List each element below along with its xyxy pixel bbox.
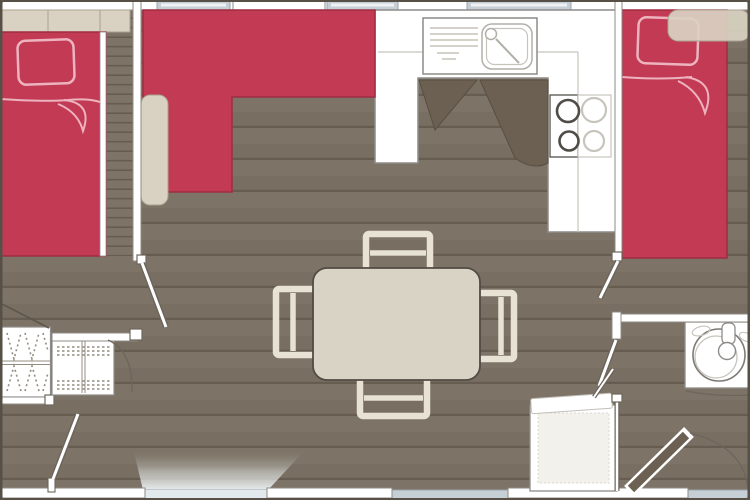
corner-shelf [668,10,750,41]
double-bed [0,32,106,256]
wall-kidsroom [52,333,137,341]
double-bed-edge [100,32,106,256]
floorplan [0,0,750,500]
wall-kitchen-right [615,0,622,259]
bottom-wall-1 [2,488,145,498]
bottom-wall-2 [267,488,392,498]
kids-wall-hinge [130,329,142,340]
top-window-4-glass [471,4,567,7]
shower-tray-inner [538,413,609,483]
burner-1 [557,100,579,122]
burner-2 [560,132,579,151]
dining-table [313,268,480,380]
floorplan-svg [0,0,750,500]
washbasin-knob [719,343,736,360]
wall-bathroom [618,314,750,322]
bunk-bed-2 [52,336,114,395]
washbasin-faucet [722,323,735,344]
wardrobe-strip [106,10,133,256]
sink-faucet-dot [486,29,497,40]
bunk-base-hinge [45,395,54,405]
kids-exterior-door-hinge [48,478,55,492]
bunk-bed-1-base [1,397,51,404]
top-window-1-glass [161,4,226,7]
top-window-3-glass [331,4,394,7]
bunk-bed-1 [1,327,51,397]
side-table [141,95,168,205]
shower-screen-flag [612,394,622,402]
headboard-cabinet [0,10,130,32]
wall-bathroom-stub [612,312,621,339]
wall-bedroom1 [133,0,141,261]
bedroom2-door-hinge [612,252,622,261]
